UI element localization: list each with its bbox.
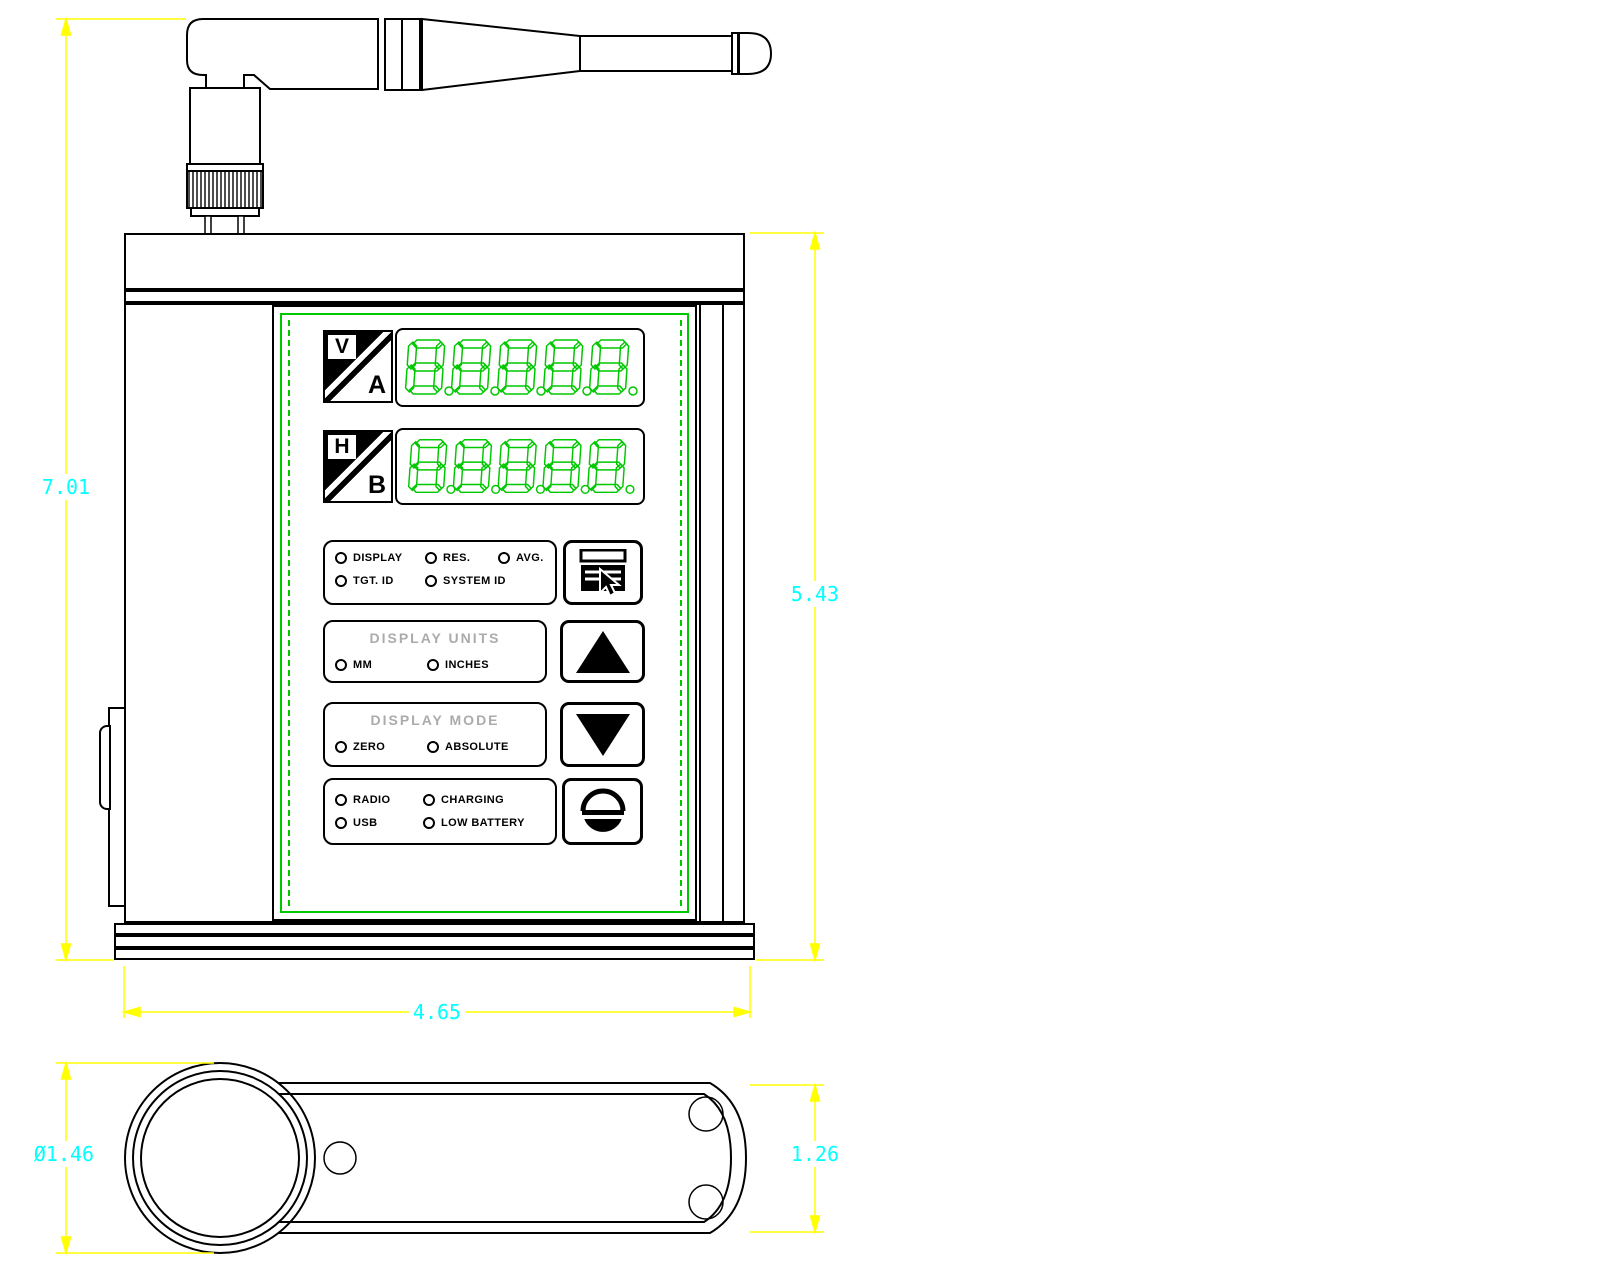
knob-circle-mid xyxy=(133,1071,307,1245)
zero-led xyxy=(335,741,347,753)
dim-body-width: 4.65 xyxy=(409,999,465,1025)
base-band-3 xyxy=(114,948,755,960)
dim-knob-diameter: Ø1.46 xyxy=(30,1141,98,1167)
panel-green-dash-left xyxy=(288,320,290,906)
panel-green-dash-right xyxy=(680,320,682,906)
antenna-shaft xyxy=(580,36,732,71)
dim-base-depth: 1.26 xyxy=(787,1141,843,1167)
cad-drawing-canvas: V A H B DISPLAY RES. AVG. TGT. ID SYSTEM… xyxy=(0,0,1600,1280)
knob-circle-outer xyxy=(125,1063,315,1253)
badge-a-label: A xyxy=(368,371,386,400)
display-mode-panel: DISPLAY MODE ZERO ABSOLUTE xyxy=(323,702,547,767)
res-led xyxy=(425,552,437,564)
body-top-band xyxy=(124,290,745,303)
menu-led-panel: DISPLAY RES. AVG. TGT. ID SYSTEM ID xyxy=(323,540,557,605)
antenna-cone xyxy=(422,19,580,90)
badge-h-label: H xyxy=(328,435,356,459)
display-a-digits xyxy=(397,330,643,405)
bottom-body-inner xyxy=(279,1094,731,1222)
display-led-label: DISPLAY xyxy=(353,552,402,564)
base-band-1 xyxy=(114,923,755,935)
low-battery-led-label: LOW BATTERY xyxy=(441,817,525,829)
avg-led xyxy=(498,552,510,564)
badge-horizontal-b: H B xyxy=(323,430,393,503)
body-top-cap xyxy=(124,233,745,290)
seven-segment-display-a xyxy=(395,328,645,407)
panel-right-seam-2 xyxy=(722,303,724,923)
up-arrow-icon xyxy=(574,629,632,675)
absolute-led-label: ABSOLUTE xyxy=(445,741,509,753)
pivot-hole xyxy=(324,1142,356,1174)
mm-led xyxy=(335,659,347,671)
base-band-2 xyxy=(114,935,755,948)
charging-led-label: CHARGING xyxy=(441,794,504,806)
badge-vertical-a: V A xyxy=(323,330,393,403)
side-connector-bump xyxy=(99,725,111,810)
inches-led xyxy=(427,659,439,671)
radio-led xyxy=(335,794,347,806)
dim-body-height: 5.43 xyxy=(787,581,843,607)
antenna-drawing xyxy=(187,19,771,234)
system-id-led xyxy=(425,575,437,587)
badge-b-label: B xyxy=(368,471,386,500)
antenna-connector-body xyxy=(190,88,260,164)
knob-circle-inner xyxy=(141,1079,299,1237)
display-units-panel: DISPLAY UNITS MM INCHES xyxy=(323,620,547,683)
menu-button[interactable] xyxy=(563,540,643,605)
tgt-id-led-label: TGT. ID xyxy=(353,575,394,587)
mm-led-label: MM xyxy=(353,659,372,671)
panel-right-seam-1 xyxy=(699,303,701,923)
radio-led-label: RADIO xyxy=(353,794,390,806)
seven-segment-display-b xyxy=(395,428,645,505)
antenna-elbow xyxy=(187,19,378,89)
badge-v-label: V xyxy=(328,335,356,359)
display-mode-title: DISPLAY MODE xyxy=(325,712,545,728)
mount-hole-bottom xyxy=(689,1185,723,1219)
system-id-led-label: SYSTEM ID xyxy=(443,575,506,587)
power-button[interactable] xyxy=(562,778,643,845)
display-units-title: DISPLAY UNITS xyxy=(325,630,545,646)
antenna-tip xyxy=(739,33,771,74)
mount-hole-top xyxy=(689,1097,723,1131)
power-knob-icon xyxy=(579,788,627,836)
menu-icon xyxy=(578,549,628,597)
low-battery-led xyxy=(423,817,435,829)
tgt-id-led xyxy=(335,575,347,587)
down-button[interactable] xyxy=(560,702,645,767)
usb-led xyxy=(335,817,347,829)
dim-overall-height: 7.01 xyxy=(38,474,94,500)
absolute-led xyxy=(427,741,439,753)
status-led-panel: RADIO CHARGING USB LOW BATTERY xyxy=(323,778,557,845)
inches-led-label: INCHES xyxy=(445,659,489,671)
usb-led-label: USB xyxy=(353,817,377,829)
bottom-body-outer xyxy=(278,1083,746,1233)
down-arrow-icon xyxy=(574,712,632,758)
display-led xyxy=(335,552,347,564)
avg-led-label: AVG. xyxy=(516,552,544,564)
charging-led xyxy=(423,794,435,806)
antenna-knurl-ring xyxy=(187,171,263,208)
display-b-digits xyxy=(397,430,643,503)
up-button[interactable] xyxy=(560,620,645,683)
zero-led-label: ZERO xyxy=(353,741,385,753)
bottom-view-drawing xyxy=(125,1063,746,1253)
res-led-label: RES. xyxy=(443,552,470,564)
